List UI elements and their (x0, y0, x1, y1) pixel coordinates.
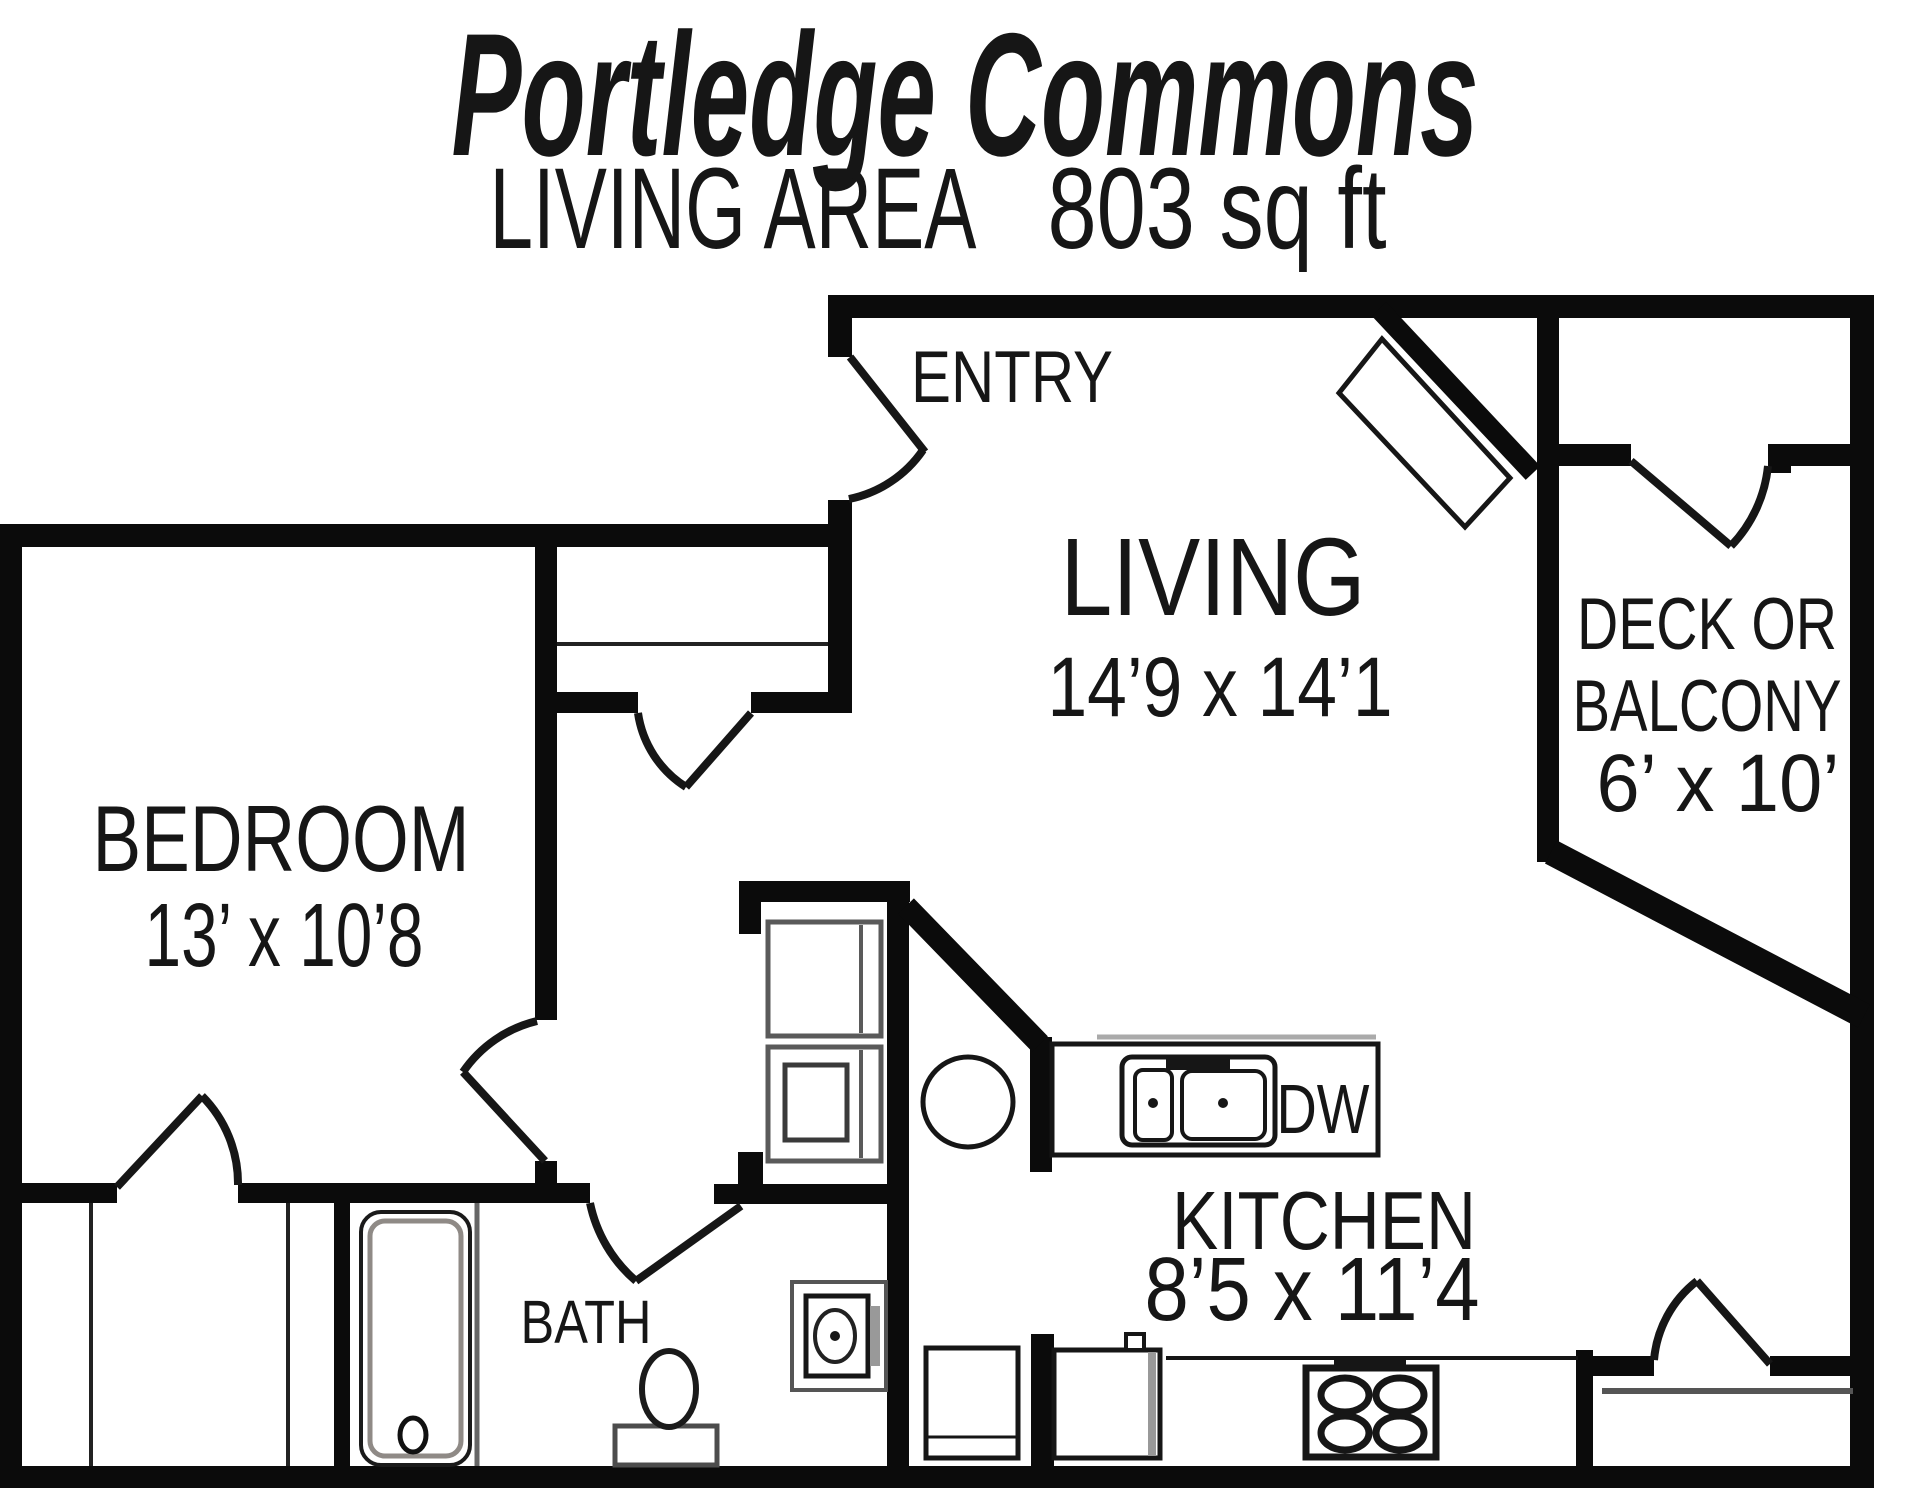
svg-text:6’ x 10’: 6’ x 10’ (1597, 738, 1840, 829)
svg-text:LIVING AREA: LIVING AREA (490, 145, 977, 273)
svg-text:DW: DW (1277, 1070, 1370, 1148)
svg-text:DECK OR: DECK OR (1577, 584, 1837, 665)
svg-text:BEDROOM: BEDROOM (93, 786, 470, 891)
svg-text:BALCONY: BALCONY (1573, 666, 1842, 747)
svg-text:14’9 x 14’1: 14’9 x 14’1 (1048, 640, 1393, 734)
svg-text:BATH: BATH (521, 1288, 652, 1356)
svg-text:ENTRY: ENTRY (911, 337, 1113, 418)
svg-text:LIVING: LIVING (1061, 516, 1366, 639)
svg-text:8’5 x 11’4: 8’5 x 11’4 (1145, 1240, 1480, 1340)
svg-text:13’ x 10’8: 13’ x 10’8 (145, 886, 424, 986)
svg-text:803 sq ft: 803 sq ft (1048, 145, 1387, 273)
